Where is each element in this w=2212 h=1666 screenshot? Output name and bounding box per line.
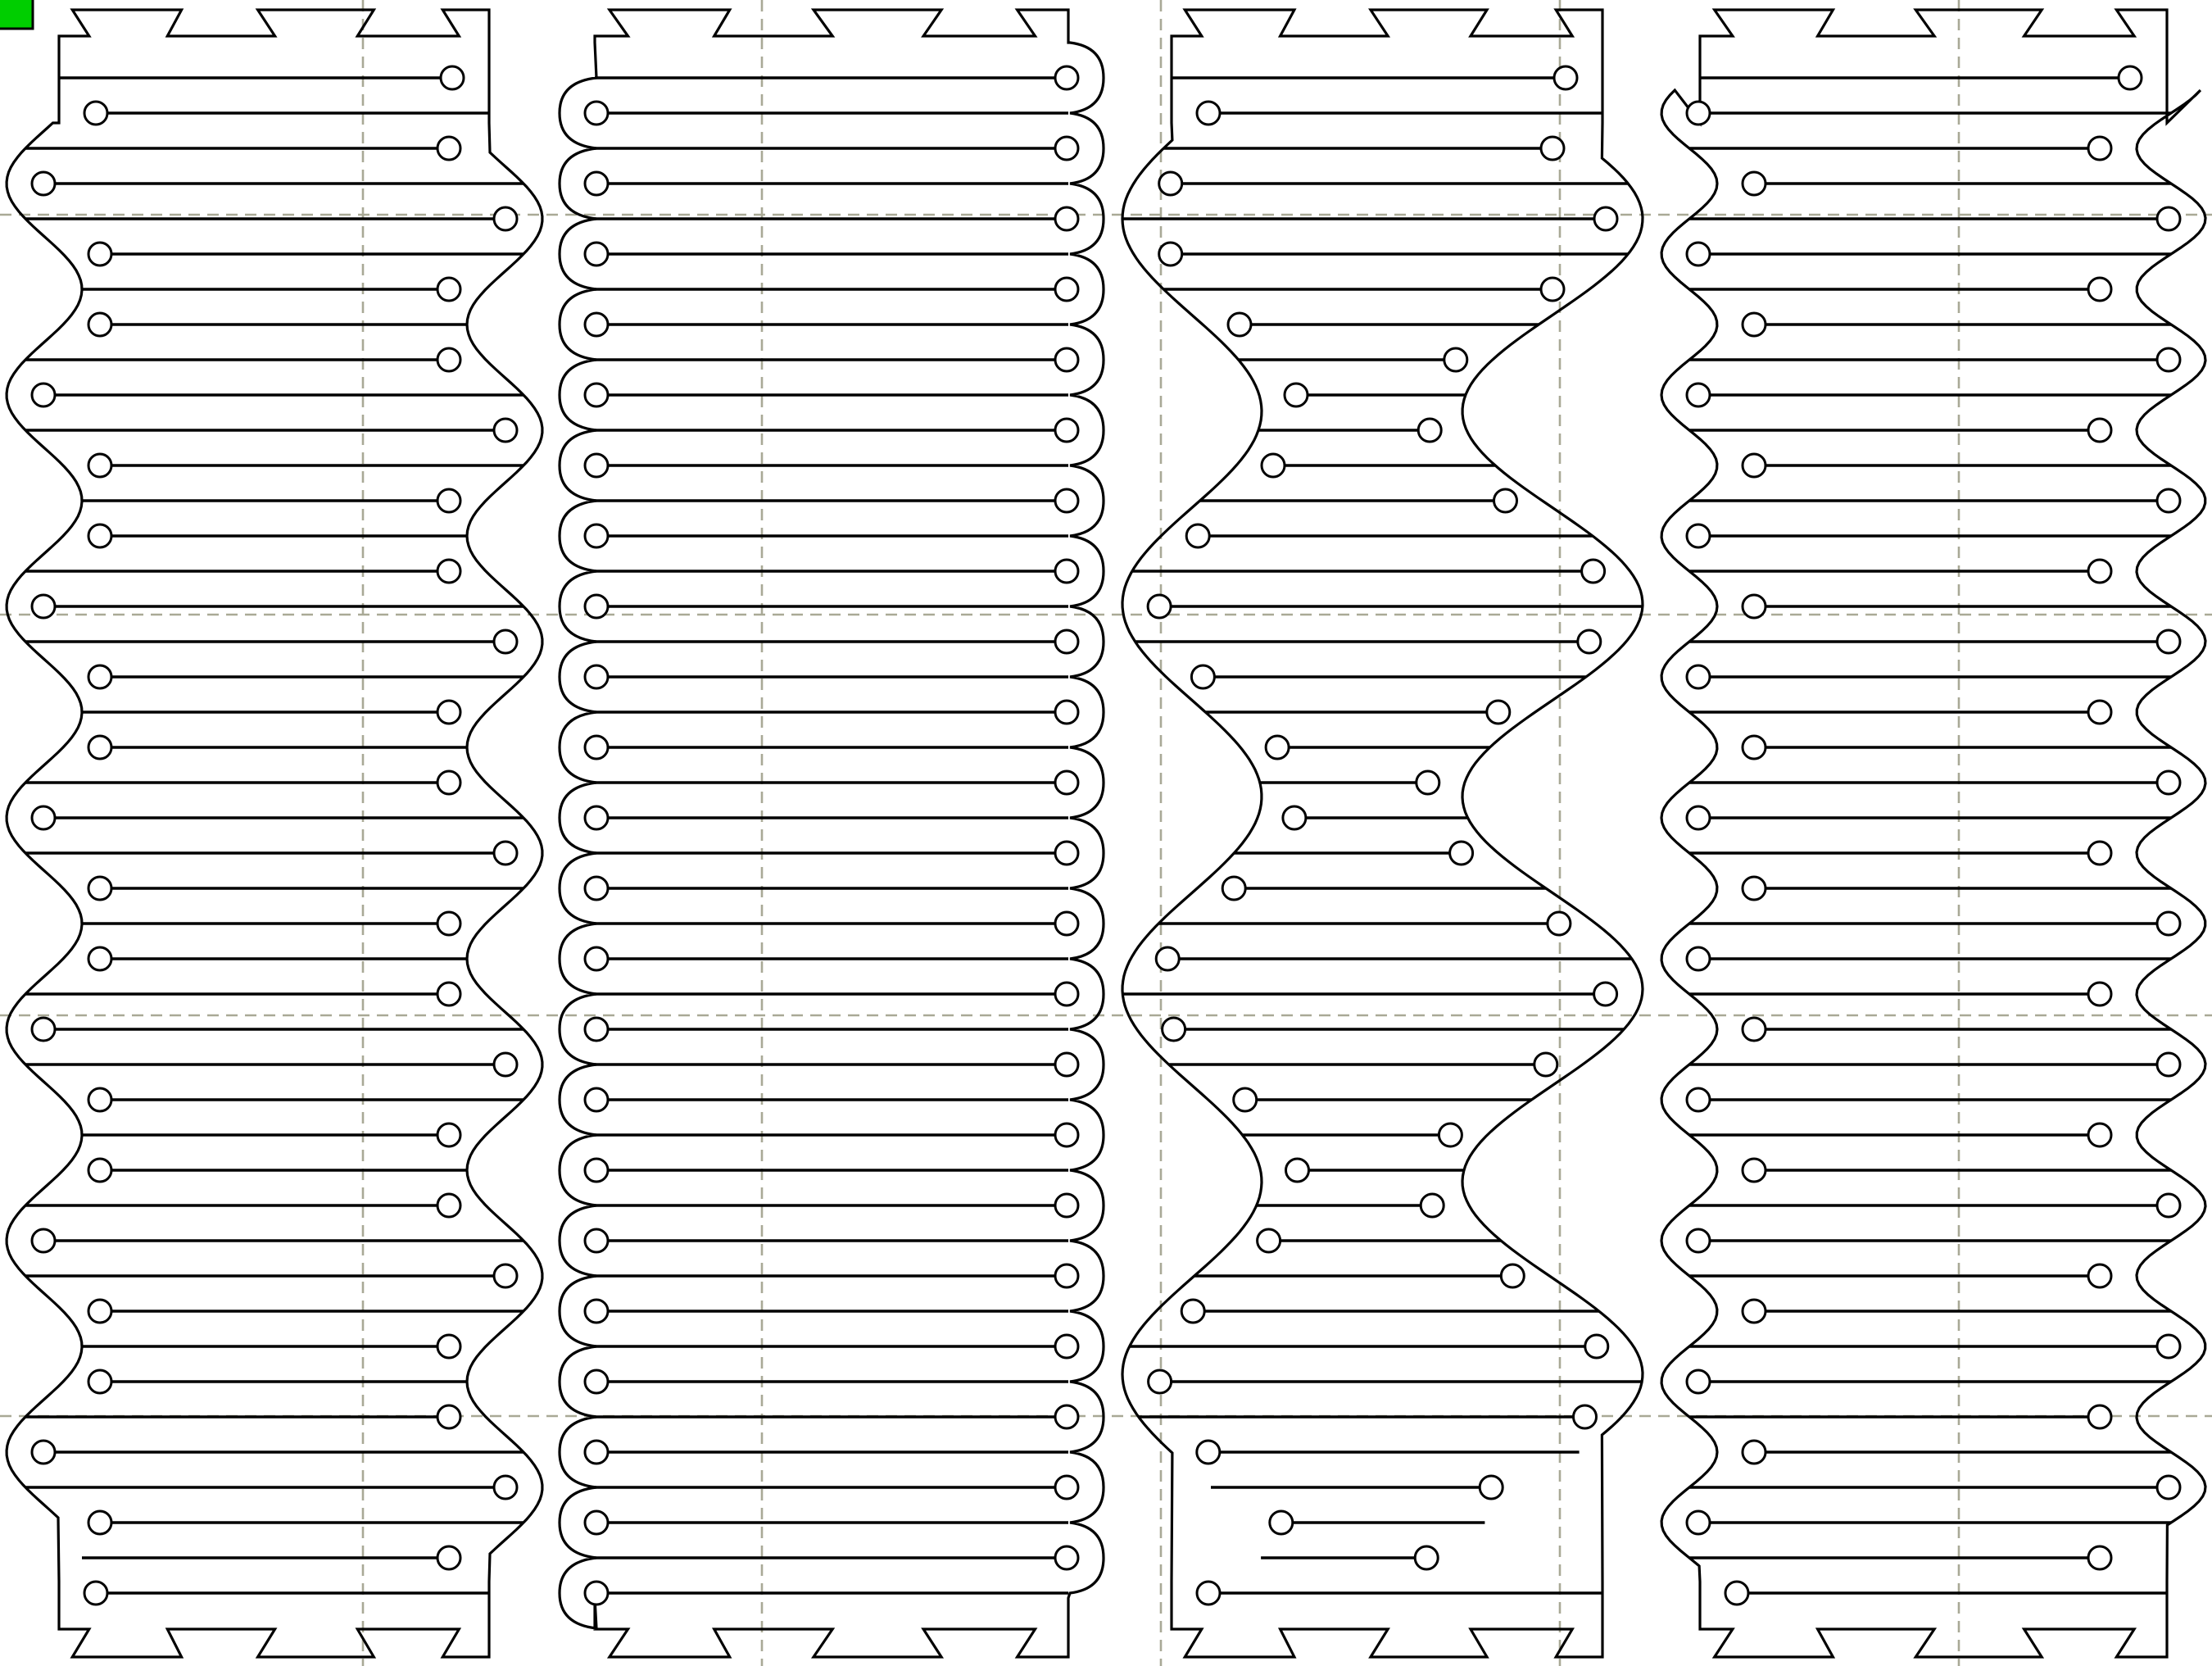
- relief-hole: [585, 806, 608, 829]
- relief-hole: [1439, 1124, 1462, 1146]
- relief-hole: [1149, 1370, 1172, 1393]
- relief-hole: [585, 1582, 608, 1605]
- relief-hole: [2088, 1546, 2111, 1569]
- relief-hole: [1283, 806, 1306, 829]
- pattern-column-2[interactable]: [560, 10, 1104, 1657]
- relief-hole: [1055, 912, 1078, 935]
- relief-hole: [1415, 1546, 1438, 1569]
- relief-hole: [1266, 736, 1289, 759]
- relief-hole: [2088, 1124, 2111, 1146]
- relief-hole: [1055, 419, 1078, 442]
- relief-hole: [1534, 1053, 1557, 1076]
- relief-hole: [585, 454, 608, 477]
- relief-hole: [1285, 384, 1308, 406]
- relief-hole: [88, 1511, 111, 1534]
- relief-hole: [585, 524, 608, 547]
- relief-hole: [1582, 560, 1605, 583]
- relief-hole: [32, 1018, 55, 1041]
- relief-hole: [88, 1088, 111, 1111]
- relief-hole: [437, 137, 460, 160]
- relief-hole: [437, 771, 460, 794]
- relief-hole: [2157, 1476, 2180, 1499]
- relief-hole: [494, 1476, 517, 1499]
- relief-hole: [1480, 1476, 1503, 1499]
- relief-hole: [1159, 243, 1182, 266]
- pattern-column-4-outline: [1661, 10, 2205, 1657]
- relief-hole: [585, 1300, 608, 1323]
- cad-canvas[interactable]: [0, 0, 2212, 1666]
- relief-hole: [437, 983, 460, 1006]
- relief-hole: [1687, 524, 1710, 547]
- relief-hole: [1585, 1335, 1608, 1358]
- relief-hole: [1743, 877, 1766, 900]
- relief-hole: [1055, 842, 1078, 865]
- relief-hole: [2157, 489, 2180, 512]
- relief-hole: [2157, 912, 2180, 935]
- relief-hole: [1055, 137, 1078, 160]
- relief-hole: [1191, 665, 1214, 688]
- relief-hole: [2157, 630, 2180, 653]
- relief-hole: [585, 384, 608, 406]
- relief-hole: [1594, 983, 1617, 1006]
- relief-hole: [1743, 1300, 1766, 1323]
- relief-hole: [1687, 1370, 1710, 1393]
- relief-hole: [1148, 595, 1171, 618]
- relief-hole: [1541, 137, 1564, 160]
- relief-hole: [1501, 1264, 1524, 1287]
- relief-hole: [1418, 419, 1441, 442]
- relief-hole: [2088, 983, 2111, 1006]
- relief-hole: [1055, 1405, 1078, 1428]
- pattern-column-1[interactable]: [7, 10, 542, 1657]
- relief-hole: [1055, 1476, 1078, 1499]
- relief-hole: [1554, 66, 1577, 89]
- relief-hole: [1687, 1088, 1710, 1111]
- pattern-column-2-outline: [560, 10, 1104, 1657]
- relief-hole: [1541, 278, 1564, 301]
- relief-hole: [585, 313, 608, 336]
- relief-hole: [2157, 348, 2180, 371]
- relief-hole: [1725, 1582, 1748, 1605]
- relief-hole: [585, 172, 608, 195]
- relief-hole: [2157, 1335, 2180, 1358]
- relief-hole: [437, 1335, 460, 1358]
- relief-hole: [88, 1300, 111, 1323]
- relief-hole: [437, 489, 460, 512]
- relief-hole: [1743, 172, 1766, 195]
- relief-hole: [2088, 419, 2111, 442]
- pattern-column-4[interactable]: [1661, 10, 2205, 1657]
- relief-hole: [2088, 701, 2111, 724]
- relief-hole: [494, 842, 517, 865]
- relief-hole: [88, 454, 111, 477]
- relief-hole: [1055, 348, 1078, 371]
- relief-hole: [1743, 1441, 1766, 1464]
- relief-hole: [1258, 1229, 1281, 1252]
- relief-hole: [1743, 454, 1766, 477]
- relief-hole: [1186, 524, 1209, 547]
- relief-hole: [585, 1370, 608, 1393]
- relief-hole: [2157, 207, 2180, 230]
- relief-hole: [1578, 630, 1601, 653]
- relief-hole: [585, 877, 608, 900]
- pattern-column-1-outline: [7, 10, 542, 1657]
- relief-hole: [494, 207, 517, 230]
- relief-hole: [1055, 1546, 1078, 1569]
- relief-hole: [1234, 1088, 1257, 1111]
- relief-hole: [1574, 1405, 1597, 1428]
- relief-hole: [1197, 102, 1220, 125]
- relief-hole: [88, 665, 111, 688]
- relief-hole: [441, 66, 464, 89]
- relief-hole: [1743, 736, 1766, 759]
- relief-hole: [1055, 630, 1078, 653]
- relief-hole: [84, 102, 107, 125]
- relief-hole: [1055, 278, 1078, 301]
- relief-hole: [1181, 1300, 1204, 1323]
- relief-hole: [1687, 1229, 1710, 1252]
- relief-hole: [1055, 1194, 1078, 1217]
- relief-hole: [1055, 66, 1078, 89]
- relief-hole: [437, 912, 460, 935]
- relief-hole: [1494, 489, 1517, 512]
- relief-hole: [1197, 1582, 1220, 1605]
- relief-hole: [1222, 877, 1245, 900]
- relief-hole: [1286, 1159, 1309, 1182]
- relief-hole: [2157, 1053, 2180, 1076]
- relief-hole: [1421, 1194, 1444, 1217]
- relief-hole: [1548, 912, 1571, 935]
- relief-hole: [32, 1229, 55, 1252]
- relief-hole: [1055, 1124, 1078, 1146]
- relief-hole: [585, 1159, 608, 1182]
- relief-hole: [2088, 278, 2111, 301]
- relief-hole: [1055, 489, 1078, 512]
- relief-hole: [1743, 1159, 1766, 1182]
- relief-hole: [494, 1264, 517, 1287]
- relief-hole: [1055, 983, 1078, 1006]
- relief-hole: [1450, 842, 1473, 865]
- relief-hole: [585, 1511, 608, 1534]
- relief-hole: [1228, 313, 1251, 336]
- relief-hole: [2157, 771, 2180, 794]
- relief-hole: [1055, 1264, 1078, 1287]
- relief-hole: [1687, 384, 1710, 406]
- relief-hole: [1156, 947, 1179, 970]
- relief-hole: [88, 947, 111, 970]
- relief-hole: [437, 1405, 460, 1428]
- relief-hole: [585, 102, 608, 125]
- relief-hole: [437, 701, 460, 724]
- relief-hole: [1687, 947, 1710, 970]
- relief-hole: [585, 665, 608, 688]
- relief-hole: [437, 560, 460, 583]
- relief-hole: [494, 630, 517, 653]
- pattern-column-3[interactable]: [1122, 10, 1643, 1657]
- relief-hole: [585, 1088, 608, 1111]
- relief-hole: [1743, 595, 1766, 618]
- pattern-column-3-outline: [1122, 10, 1643, 1657]
- relief-hole: [88, 313, 111, 336]
- relief-hole: [1743, 313, 1766, 336]
- relief-hole: [1687, 102, 1710, 125]
- relief-hole: [1270, 1511, 1293, 1534]
- relief-hole: [1687, 243, 1710, 266]
- relief-hole: [585, 947, 608, 970]
- relief-hole: [1262, 454, 1285, 477]
- relief-hole: [1743, 1018, 1766, 1041]
- relief-hole: [585, 1018, 608, 1041]
- relief-hole: [585, 1441, 608, 1464]
- relief-hole: [437, 278, 460, 301]
- relief-hole: [1163, 1018, 1185, 1041]
- relief-hole: [585, 736, 608, 759]
- relief-hole: [437, 1546, 460, 1569]
- relief-hole: [437, 348, 460, 371]
- relief-hole: [32, 1441, 55, 1464]
- relief-hole: [585, 243, 608, 266]
- relief-hole: [2088, 137, 2111, 160]
- relief-hole: [84, 1582, 107, 1605]
- relief-hole: [2088, 842, 2111, 865]
- relief-hole: [1487, 701, 1510, 724]
- relief-hole: [88, 1370, 111, 1393]
- relief-hole: [1055, 560, 1078, 583]
- relief-hole: [88, 524, 111, 547]
- relief-hole: [88, 1159, 111, 1182]
- relief-hole: [1687, 806, 1710, 829]
- relief-hole: [1055, 1335, 1078, 1358]
- relief-hole: [585, 595, 608, 618]
- relief-hole: [1416, 771, 1439, 794]
- relief-hole: [88, 877, 111, 900]
- relief-hole: [2088, 1264, 2111, 1287]
- relief-hole: [88, 736, 111, 759]
- relief-hole: [88, 243, 111, 266]
- relief-hole: [32, 806, 55, 829]
- relief-hole: [1197, 1441, 1220, 1464]
- drawing-svg[interactable]: [0, 0, 2212, 1666]
- relief-hole: [437, 1124, 460, 1146]
- relief-hole: [32, 595, 55, 618]
- green-selection-marker: [0, 0, 33, 29]
- relief-hole: [1055, 771, 1078, 794]
- relief-hole: [1055, 701, 1078, 724]
- relief-hole: [1687, 1511, 1710, 1534]
- relief-hole: [1444, 348, 1467, 371]
- relief-hole: [2157, 1194, 2180, 1217]
- relief-hole: [1687, 665, 1710, 688]
- relief-hole: [494, 419, 517, 442]
- relief-hole: [2119, 66, 2142, 89]
- relief-hole: [1055, 1053, 1078, 1076]
- relief-hole: [2088, 560, 2111, 583]
- relief-hole: [1594, 207, 1617, 230]
- relief-hole: [32, 172, 55, 195]
- relief-hole: [2088, 1405, 2111, 1428]
- relief-hole: [32, 384, 55, 406]
- relief-hole: [1159, 172, 1182, 195]
- relief-hole: [585, 1229, 608, 1252]
- relief-hole: [494, 1053, 517, 1076]
- relief-hole: [437, 1194, 460, 1217]
- relief-hole: [1055, 207, 1078, 230]
